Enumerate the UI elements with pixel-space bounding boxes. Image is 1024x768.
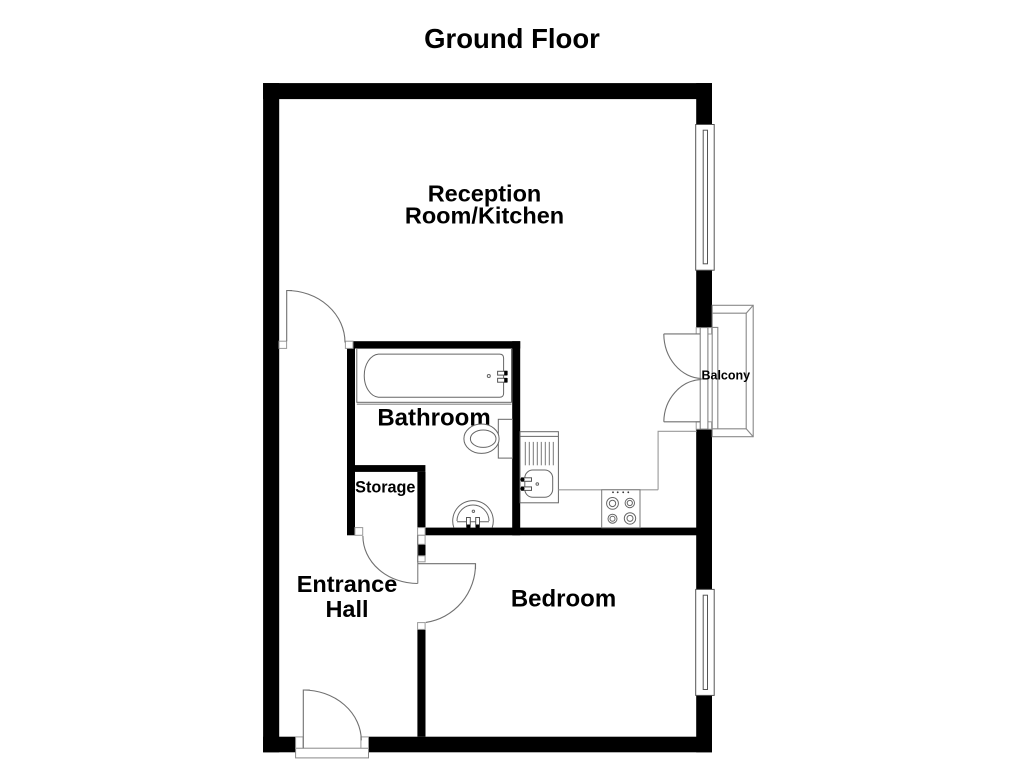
svg-text:Balcony: Balcony — [701, 369, 750, 383]
svg-text:Ground Floor: Ground Floor — [424, 23, 600, 54]
svg-text:Hall: Hall — [325, 596, 368, 622]
svg-text:Bedroom: Bedroom — [511, 586, 616, 613]
svg-text:Entrance: Entrance — [297, 571, 398, 597]
svg-text:Room/Kitchen: Room/Kitchen — [405, 203, 564, 229]
svg-text:Storage: Storage — [355, 478, 415, 496]
